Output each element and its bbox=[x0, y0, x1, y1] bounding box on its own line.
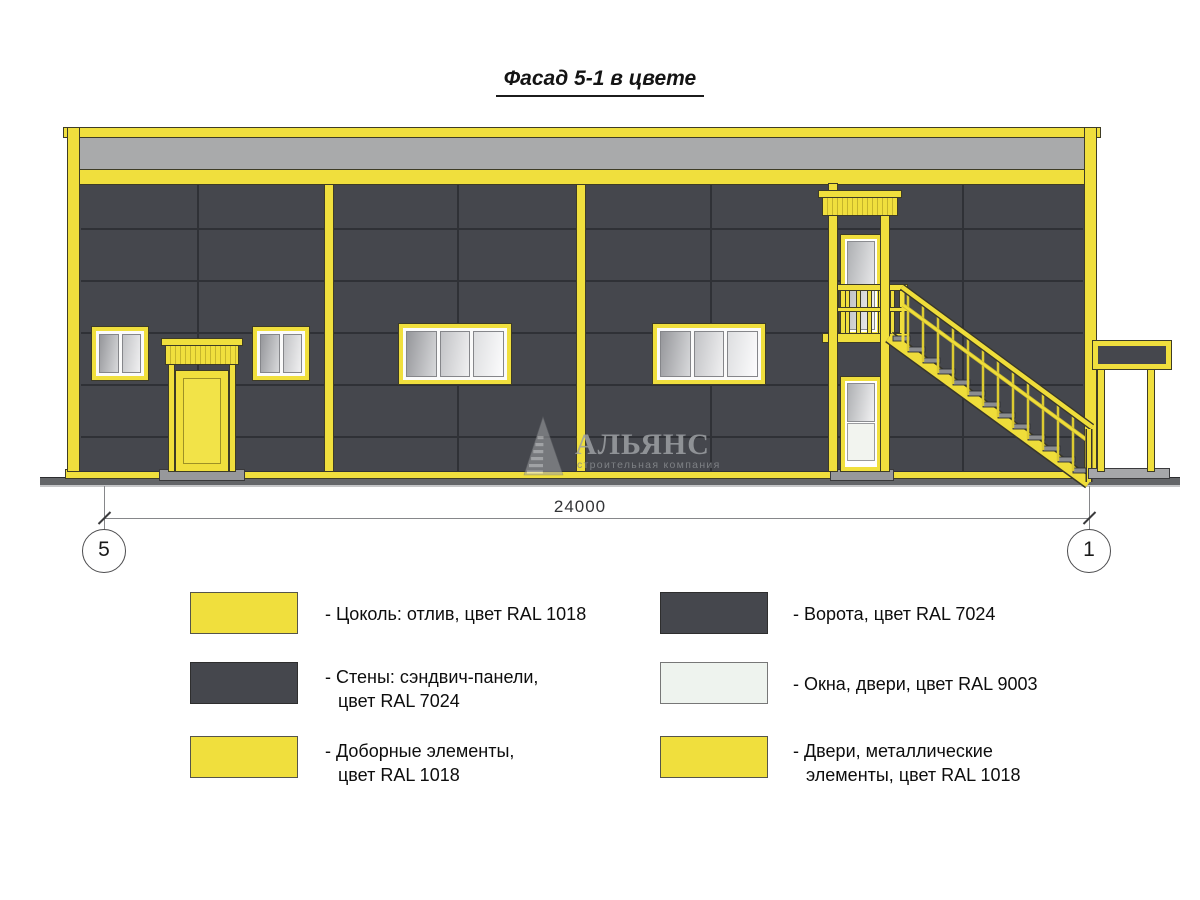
railing-baluster bbox=[891, 290, 894, 336]
legend-label-trim: - Доборные элементы, цвет RAL 1018 bbox=[325, 740, 514, 787]
railing-baluster bbox=[868, 290, 871, 336]
door-canopy bbox=[166, 345, 238, 364]
corner-column-left bbox=[68, 128, 79, 471]
railing-baluster bbox=[857, 290, 860, 336]
window-2pane-left bbox=[92, 327, 148, 380]
side-canopy-band bbox=[1093, 341, 1171, 369]
cornice-yellow-band bbox=[79, 170, 1085, 184]
legend-swatch-trim bbox=[190, 736, 298, 778]
door-threshold bbox=[160, 470, 244, 480]
window-pane bbox=[260, 334, 280, 373]
tower-door-threshold bbox=[831, 470, 893, 480]
railing-baluster bbox=[900, 290, 903, 336]
window-pane bbox=[727, 331, 758, 377]
facade-drawing-sheet: Фасад 5-1 в цвете АЛЬЯНС строительная ко bbox=[0, 0, 1200, 900]
drawing-title-text: Фасад 5-1 в цвете bbox=[496, 67, 704, 97]
watermark-company-subtitle: строительная компания bbox=[577, 459, 721, 471]
legend-label-plinth: - Цоколь: отлив, цвет RAL 1018 bbox=[325, 603, 586, 627]
tower-canopy-cap bbox=[819, 191, 901, 197]
pilaster bbox=[325, 184, 333, 471]
window-pane bbox=[473, 331, 504, 377]
tower-lower-door-glass bbox=[847, 383, 875, 422]
balcony-top-rail bbox=[831, 285, 907, 290]
legend-swatch-doors bbox=[660, 736, 768, 778]
dimension-extension-line-right bbox=[1089, 486, 1090, 532]
parapet-band bbox=[79, 137, 1085, 170]
window-pane bbox=[283, 334, 303, 373]
dimension-label: 24000 bbox=[530, 497, 630, 517]
grid-axis-bubble-5: 5 bbox=[82, 529, 126, 573]
window-pane bbox=[660, 331, 691, 377]
panel-seam-vertical bbox=[962, 184, 964, 471]
dimension-extension-line-left bbox=[104, 486, 105, 532]
window-pane bbox=[406, 331, 437, 377]
entrance-door-slab bbox=[183, 378, 221, 464]
door-canopy-post-right bbox=[230, 363, 235, 471]
watermark-logo bbox=[522, 414, 566, 478]
window-3pane-center-left bbox=[399, 324, 511, 384]
grid-axis-bubble-1: 1 bbox=[1067, 529, 1111, 573]
legend-swatch-windows bbox=[660, 662, 768, 704]
entrance-door bbox=[176, 371, 228, 471]
tower-post-right bbox=[881, 214, 889, 471]
balcony-mid-rail bbox=[831, 308, 907, 311]
roof-cap-strip bbox=[64, 128, 1100, 137]
legend-label-walls: - Стены: сэндвич-панели, цвет RAL 7024 bbox=[325, 666, 538, 713]
window-3pane-center-right bbox=[653, 324, 765, 384]
window-pane bbox=[440, 331, 471, 377]
tower-canopy bbox=[823, 197, 897, 215]
door-canopy-post-left bbox=[169, 363, 174, 471]
side-canopy-post-left bbox=[1098, 369, 1104, 471]
tower-lower-door-panel bbox=[847, 423, 875, 461]
dimension-line bbox=[104, 518, 1090, 519]
legend-label-windows: - Окна, двери, цвет RAL 9003 bbox=[793, 673, 1038, 697]
window-pane bbox=[694, 331, 725, 377]
door-canopy-cap bbox=[162, 339, 242, 345]
corner-column-right bbox=[1085, 128, 1096, 471]
railing-baluster bbox=[846, 290, 849, 336]
tower-lower-door bbox=[841, 377, 881, 471]
window-pane bbox=[99, 334, 119, 373]
legend-swatch-gates bbox=[660, 592, 768, 634]
legend-swatch-plinth bbox=[190, 592, 298, 634]
window-pane bbox=[122, 334, 142, 373]
watermark-company-name: АЛЬЯНС bbox=[575, 428, 710, 462]
legend-label-doors: - Двери, металлические элементы, цвет RA… bbox=[793, 740, 1021, 787]
tower-post-left bbox=[829, 184, 837, 471]
legend-label-gates: - Ворота, цвет RAL 7024 bbox=[793, 603, 995, 627]
window-2pane-second bbox=[253, 327, 309, 380]
side-canopy-post-right bbox=[1148, 369, 1154, 471]
legend-swatch-walls bbox=[190, 662, 298, 704]
drawing-title: Фасад 5-1 в цвете bbox=[0, 67, 1200, 97]
